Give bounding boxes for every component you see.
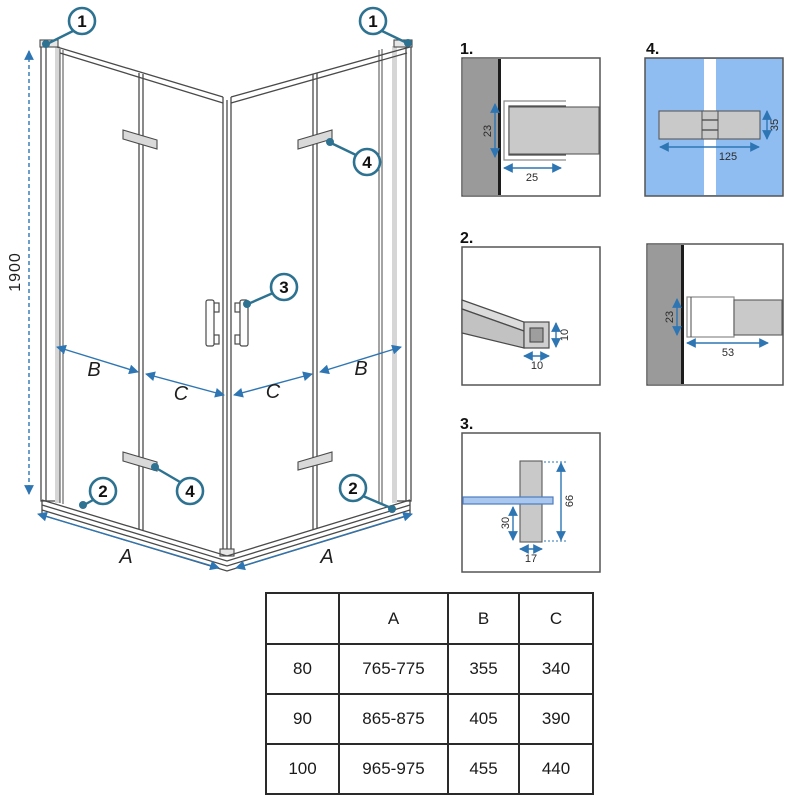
callout-4-top-right: 4 (326, 138, 380, 175)
callout-4-number: 4 (362, 153, 372, 172)
top-edges (57, 47, 410, 103)
callout-2-number: 2 (348, 479, 357, 498)
cell-b: 355 (448, 644, 519, 694)
detail-2-width: 10 (531, 360, 543, 372)
size-table: A B C 80 765-775 355 340 90 865-875 405 … (265, 592, 594, 795)
glass-panel-bar (463, 497, 553, 504)
bracket-body (687, 297, 734, 337)
detail-2-square-bar: 2. 10 10 (460, 230, 600, 385)
detail-4-width: 125 (719, 151, 737, 163)
shower-enclosure-technical-sheet: 1900 A A B C C B 1 (0, 0, 801, 800)
callout-1-right: 1 (360, 8, 412, 47)
table-header-row: A B C (266, 593, 593, 644)
header-b: B (448, 593, 519, 644)
dimension-height-1900: 1900 (7, 51, 29, 494)
segment-c-left-label: C (174, 383, 189, 405)
detail-1-width: 25 (526, 172, 538, 184)
glass-clamp (734, 300, 782, 335)
detail-4-height: 35 (769, 119, 781, 131)
cell-c: 340 (519, 644, 593, 694)
bottom-rails (42, 500, 410, 571)
callout-2-number: 2 (98, 482, 107, 501)
header-a: A (339, 593, 448, 644)
callout-2-left: 2 (79, 478, 116, 509)
detail-4-label: 4. (646, 41, 659, 58)
detail-2-label: 2. (460, 230, 473, 247)
glass-edges (60, 49, 382, 504)
detail-3-lower: 30 (500, 517, 512, 529)
main-enclosure-drawing: 1900 A A B C C B 1 (7, 8, 412, 571)
callout-1-number: 1 (77, 12, 86, 31)
table-row: 100 965-975 455 440 (266, 744, 593, 794)
detail-3-width: 17 (525, 553, 537, 565)
cell-size: 80 (266, 644, 339, 694)
table-row: 90 865-875 405 390 (266, 694, 593, 744)
detail-3-handle: 3. 66 30 17 (460, 416, 600, 572)
callout-1-left: 1 (42, 8, 95, 48)
cell-b: 405 (448, 694, 519, 744)
detail-3-label: 3. (460, 416, 473, 433)
hinge-bottom-right (298, 452, 332, 470)
hinge-knuckle (702, 111, 718, 139)
callout-2-right: 2 (340, 475, 396, 513)
detail-5-width: 53 (722, 347, 734, 359)
table-row: 80 765-775 355 340 (266, 644, 593, 694)
callout-4-number: 4 (185, 482, 195, 501)
cell-b: 455 (448, 744, 519, 794)
cell-a: 865-875 (339, 694, 448, 744)
header-c: C (519, 593, 593, 644)
cell-c: 390 (519, 694, 593, 744)
callout-3: 3 (243, 274, 297, 308)
dimension-door-segments: B C C B (57, 347, 401, 405)
hinge-top-left (123, 130, 157, 149)
detail-5-depth: 23 (664, 311, 676, 323)
callout-1-number: 1 (368, 12, 377, 31)
cell-c: 440 (519, 744, 593, 794)
handle-left (206, 300, 219, 346)
segment-c-right-label: C (266, 381, 281, 403)
detail-1-depth: 23 (482, 125, 494, 137)
left-wall-profile (40, 40, 60, 503)
detail-2-height: 10 (559, 329, 571, 341)
cell-a: 765-775 (339, 644, 448, 694)
cell-a: 965-975 (339, 744, 448, 794)
width-a-right-label: A (319, 546, 333, 568)
cell-size: 90 (266, 694, 339, 744)
header-size (266, 593, 339, 644)
segment-b-left-label: B (87, 359, 100, 381)
height-dimension-label: 1900 (7, 252, 24, 292)
right-wall-profile (392, 40, 412, 503)
door-fold-lines (139, 73, 317, 530)
callout-4-bottom-left: 4 (151, 463, 203, 504)
detail-wall-bracket: 23 53 (647, 244, 783, 385)
detail-4-hinge: 4. 125 35 (645, 41, 783, 196)
segment-b-right-label: B (354, 358, 367, 380)
cell-size: 100 (266, 744, 339, 794)
callout-3-number: 3 (279, 278, 288, 297)
detail-3-total: 66 (564, 495, 576, 507)
corner-post (220, 97, 234, 556)
width-a-left-label: A (118, 546, 132, 568)
glass-panel-section (509, 107, 599, 154)
bar-bore (530, 328, 543, 342)
detail-1-wall-profile: 1. 23 25 (460, 41, 600, 196)
detail-1-label: 1. (460, 41, 473, 58)
